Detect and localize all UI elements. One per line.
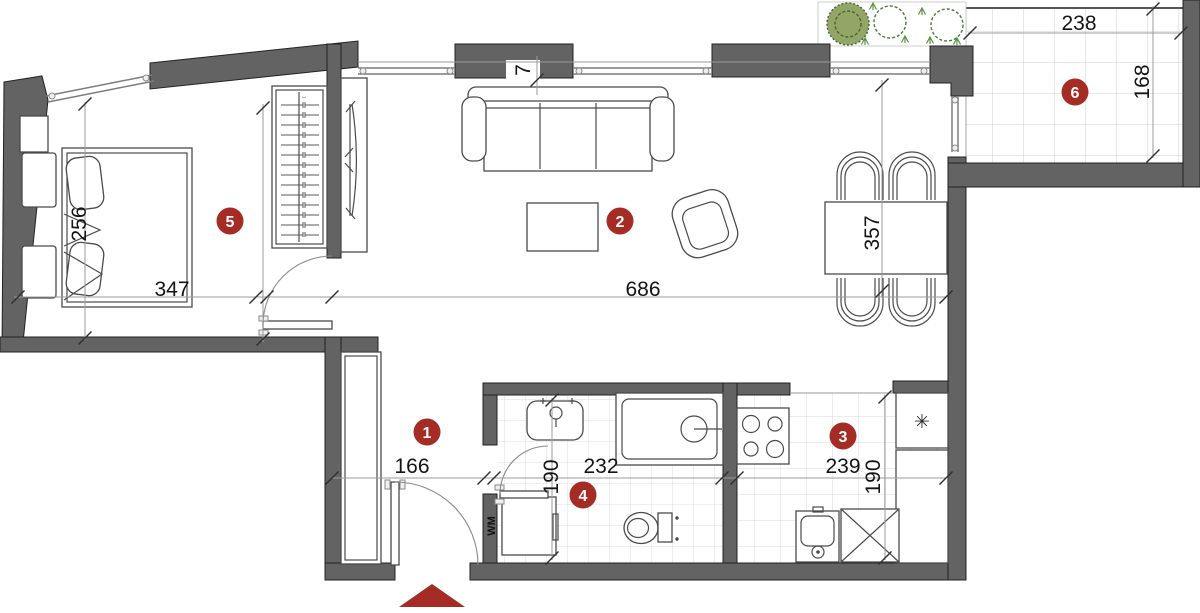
- dim-bath-depth: 190: [540, 459, 563, 494]
- dining-table: [825, 202, 947, 274]
- stove: [737, 408, 789, 464]
- wall-top-right-L: [930, 46, 973, 96]
- dishwasher: [841, 509, 899, 562]
- toilet: [624, 513, 679, 544]
- svg-text:2: 2: [616, 214, 625, 231]
- dim-living-width: 686: [625, 278, 660, 301]
- nightstand: [22, 153, 56, 207]
- wall-bath-kitchen-divider: [723, 383, 737, 563]
- kitchen-counter: [896, 450, 948, 563]
- shelf: [20, 116, 48, 152]
- door-entrance: [385, 480, 478, 565]
- wall-bedroom-divider: [327, 44, 341, 258]
- wall-balcony-bottom: [948, 163, 1200, 187]
- wall-right: [948, 157, 966, 580]
- tv-panel: [341, 78, 367, 252]
- badge-bedroom: 5: [217, 208, 244, 235]
- dim-wall-pier: 7: [512, 64, 535, 76]
- svg-text:3: 3: [839, 429, 848, 446]
- dim-balcony-width: 238: [1061, 12, 1096, 35]
- chair: [837, 152, 883, 200]
- sofa-armrest: [650, 97, 674, 161]
- dim-hall-width: 166: [394, 455, 429, 478]
- svg-text:4: 4: [579, 488, 588, 505]
- sofa: [462, 87, 674, 171]
- svg-text:1: 1: [423, 425, 432, 442]
- floor-plan: WM ✳: [0, 0, 1200, 608]
- dim-kitchen-width: 239: [825, 455, 860, 478]
- kitchen-sink: [796, 507, 839, 562]
- dining-set: [825, 152, 947, 326]
- dim-bedroom-width: 347: [154, 278, 189, 301]
- hall-closet: [341, 352, 381, 564]
- bath-sink: [527, 398, 583, 440]
- bush-icon: [827, 3, 869, 45]
- door-leaf: [391, 482, 399, 565]
- wall-top-pier2: [712, 44, 830, 77]
- fridge-symbol: ✳: [914, 412, 930, 433]
- coffee-table: [527, 203, 598, 251]
- door-bedroom: [259, 256, 332, 335]
- wall-bottom: [470, 563, 966, 580]
- door-swing-arc: [395, 482, 478, 565]
- badge-kitchen: 3: [830, 423, 857, 450]
- badge-balcony: 6: [1062, 79, 1089, 106]
- badge-living-room: 2: [607, 208, 634, 235]
- wardrobe: [272, 86, 327, 248]
- armchair: [668, 185, 742, 262]
- dim-bath-width: 232: [583, 455, 618, 478]
- badge-bathroom: 4: [570, 482, 597, 509]
- wall-bedroom-bottom: [0, 337, 378, 352]
- chair: [837, 278, 883, 326]
- bathtub: [616, 393, 723, 465]
- sofa-armrest: [462, 97, 486, 161]
- chair: [889, 152, 935, 200]
- door-leaf: [263, 321, 332, 329]
- entrance-arrow-icon: [399, 584, 465, 607]
- garden-strip: [818, 2, 966, 46]
- floor-plan-page: WM ✳: [0, 0, 1200, 608]
- badge-hallway: 1: [414, 419, 441, 446]
- fridge: ✳: [896, 393, 948, 448]
- dim-balcony-depth: 168: [1131, 64, 1154, 99]
- washing-machine-label: WM: [486, 516, 498, 536]
- svg-text:6: 6: [1071, 85, 1080, 102]
- dim-bedroom-depth: 256: [68, 206, 91, 241]
- wall-hall-left: [325, 337, 341, 580]
- hanger-rail: [281, 97, 319, 237]
- dim-dining-depth: 357: [861, 215, 884, 250]
- wall-bottom-left: [325, 563, 395, 580]
- dim-kitchen-depth: 190: [862, 459, 885, 494]
- chair: [889, 278, 935, 326]
- nightstand: [22, 246, 56, 298]
- wall-kitchen-top-right: [893, 381, 948, 393]
- svg-text:5: 5: [226, 214, 235, 231]
